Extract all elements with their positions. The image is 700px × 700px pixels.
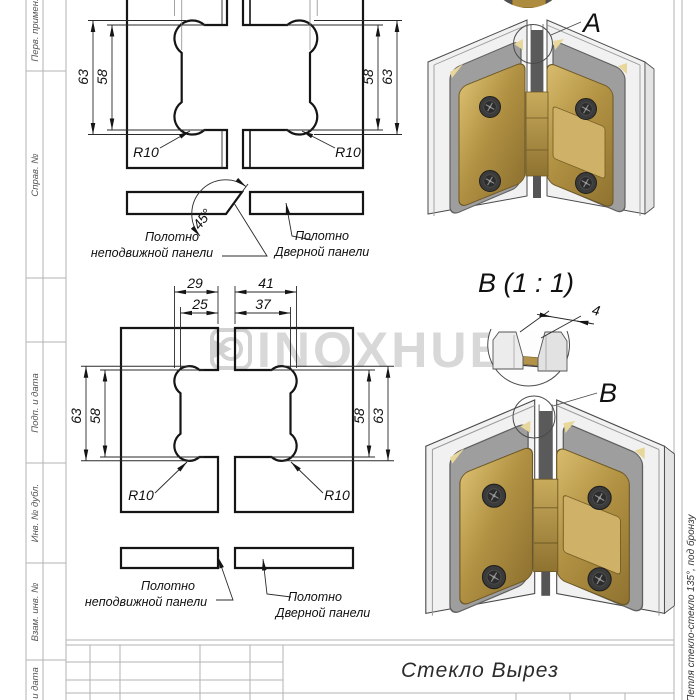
label-bottom-fixed-panel-line1: Полотно [141,579,195,593]
dim-bottom-width-outer-right: 41 [258,275,274,291]
dim-bottom-radius-right: R10 [324,487,350,503]
dim-bottom-radius-left: R10 [128,487,154,503]
render-hinge-top: A [428,0,654,216]
label-bottom-fixed-panel-line2: неподвижной панели [85,595,207,609]
dim-top-height-outer-right: 63 [379,69,395,85]
view-top-side: 45° Полотно неподвижной панели Полотно Д… [91,180,369,260]
stamp-label-perv-primen: Перв. примен. [30,0,41,62]
stamp-sidebar: Перв. примен. Справ. № Подп. и дата Инв.… [30,0,41,700]
dim-bottom-width-inner-right: 37 [255,296,272,312]
label-top-fixed-panel-line2: неподвижной панели [91,246,213,260]
right-margin-doc-name: Петля стекло-стекло 135°, под бронзу [685,514,697,700]
view-top-plan: 63 58 58 63 R10 R10 [75,0,402,168]
label-bottom-door-panel-line1: Полотно [288,590,342,604]
dim-bottom-height-outer-right: 63 [370,408,386,424]
stamp-label-inv-dubl: Инв. № дубл. [30,484,41,542]
label-top-door-panel-line2: Дверной панели [273,245,370,259]
dim-top-radius-right: R10 [335,144,361,160]
view-bottom-side: Полотно неподвижной панели Полотно Дверн… [85,548,370,620]
dim-bottom-height-inner-right: 58 [351,408,367,424]
label-top-fixed-panel-line1: Полотно [145,230,199,244]
detail-b-gap-dim: 4 [591,301,602,318]
drawing-canvas: INOXHUB Перв. примен. Справ. № Подп. и д… [0,0,700,700]
dim-bottom-width-outer-left: 29 [186,275,203,291]
document-title: Стекло Вырез [401,659,559,682]
dim-top-radius-left: R10 [133,144,159,160]
detail-b-title: В (1 : 1) [478,268,574,298]
stamp-label-vzam-inv: Взам. инв. № [30,583,41,642]
stamp-label-podp-data-1: Подп. и дата [30,373,41,432]
detail-a-label: A [581,8,601,38]
dim-bottom-width-inner-left: 25 [191,296,208,312]
view-bottom-plan: 29 25 41 37 63 58 58 63 R10 R10 [68,275,394,512]
detail-b-callout-label: В [599,378,617,408]
label-top-door-panel-line1: Полотно [295,229,349,243]
render-hinge-bottom: В [426,378,675,616]
label-bottom-door-panel-line2: Дверной панели [274,606,371,620]
title-block: Стекло Вырез [66,645,674,700]
dim-bottom-height-inner-left: 58 [87,408,103,424]
detail-a-view-cropped [488,0,568,8]
stamp-label-podp-data-2: Подп. и дата [30,667,41,700]
dim-top-height-outer-left: 63 [75,69,91,85]
dim-top-height-inner-left: 58 [94,69,110,85]
drawing-sheet: INOXHUB Перв. примен. Справ. № Подп. и д… [0,0,700,700]
dim-top-height-inner-right: 58 [360,69,376,85]
stamp-label-sprav: Справ. № [30,153,41,196]
dim-top-bevel-angle: 45° [189,205,215,232]
dim-bottom-height-outer-left: 63 [68,408,84,424]
